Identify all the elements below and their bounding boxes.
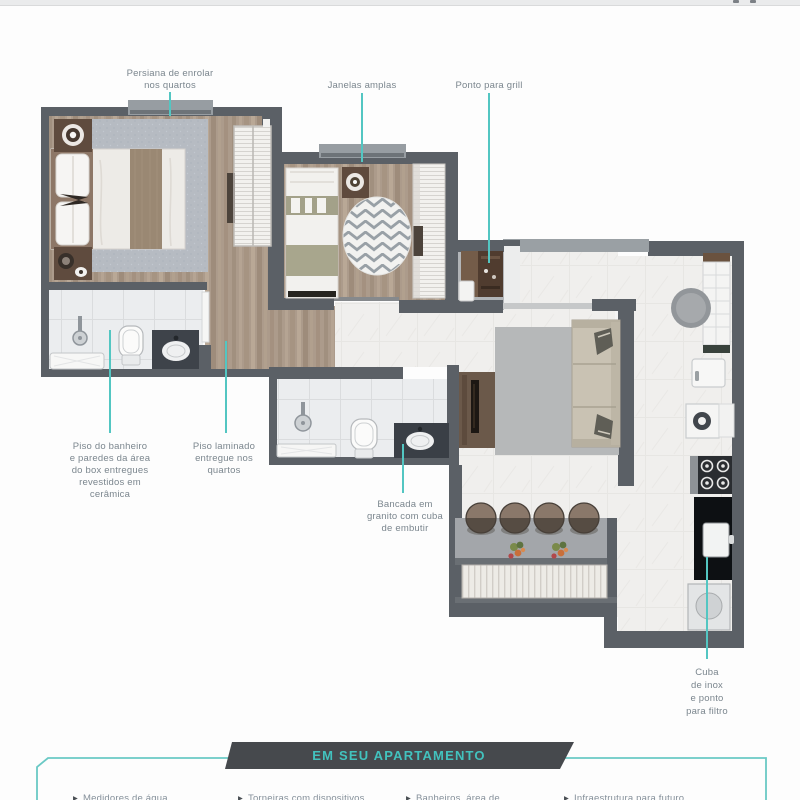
svg-text:▸: ▸ <box>73 793 78 800</box>
svg-text:e paredes da área: e paredes da área <box>70 453 151 464</box>
svg-text:Piso do banheiro: Piso do banheiro <box>73 441 148 452</box>
svg-text:Janelas amplas: Janelas amplas <box>328 80 397 91</box>
svg-text:Cuba: Cuba <box>695 667 719 678</box>
svg-text:EM SEU APARTAMENTO: EM SEU APARTAMENTO <box>312 748 486 763</box>
svg-text:Torneiras com dispositivos: Torneiras com dispositivos <box>248 793 365 800</box>
svg-text:de embutir: de embutir <box>382 523 429 534</box>
svg-text:Banheiros, área de: Banheiros, área de <box>416 793 500 800</box>
svg-text:revestidos em: revestidos em <box>79 477 141 488</box>
svg-text:▸: ▸ <box>406 793 411 800</box>
svg-text:granito com cuba: granito com cuba <box>367 511 444 522</box>
svg-text:▸: ▸ <box>238 793 243 800</box>
svg-text:Bancada em: Bancada em <box>377 499 432 510</box>
svg-text:Persiana de enrolar: Persiana de enrolar <box>127 68 214 79</box>
svg-text:cerâmica: cerâmica <box>90 489 131 500</box>
svg-text:Ponto para grill: Ponto para grill <box>455 80 522 91</box>
svg-text:▸: ▸ <box>564 793 569 800</box>
svg-text:Medidores de água: Medidores de água <box>83 793 168 800</box>
svg-text:do box entregues: do box entregues <box>72 465 149 476</box>
svg-text:de inox: de inox <box>691 680 723 691</box>
svg-text:quartos: quartos <box>207 465 240 476</box>
svg-text:nos quartos: nos quartos <box>144 80 196 91</box>
svg-text:Infraestrutura para futuro: Infraestrutura para futuro <box>574 793 684 800</box>
svg-text:para filtro: para filtro <box>686 706 728 717</box>
svg-text:Piso laminado: Piso laminado <box>193 441 255 452</box>
svg-text:entregue nos: entregue nos <box>195 453 253 464</box>
svg-text:e ponto: e ponto <box>690 693 723 704</box>
